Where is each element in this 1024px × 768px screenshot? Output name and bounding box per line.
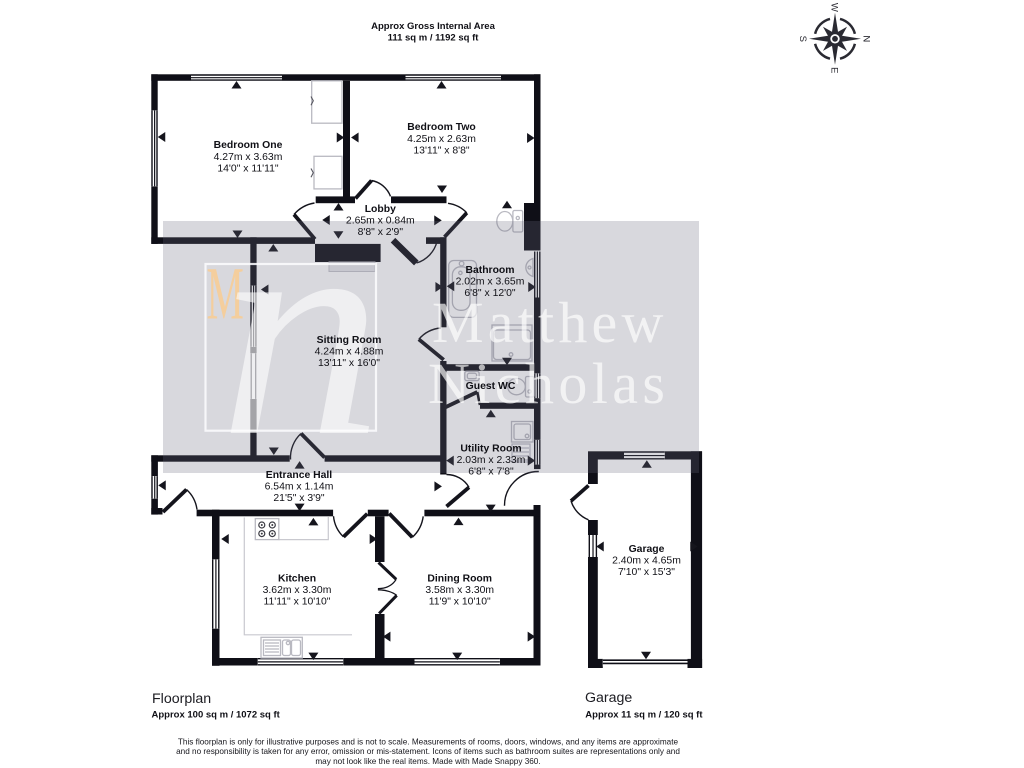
svg-text:Approx 11 sq m / 120 sq ft: Approx 11 sq m / 120 sq ft [585,710,703,721]
svg-text:8'8" x 2'9": 8'8" x 2'9" [358,227,404,238]
svg-text:Approx 100 sq m / 1072 sq ft: Approx 100 sq m / 1072 sq ft [152,709,281,720]
svg-text:Sitting Room: Sitting Room [317,335,382,346]
svg-text:2.65m x 0.84m: 2.65m x 0.84m [346,216,415,227]
svg-text:Floorplan: Floorplan [152,691,211,707]
svg-text:21'5" x 3'9": 21'5" x 3'9" [273,493,325,504]
svg-text:13'11" x 16'0": 13'11" x 16'0" [318,358,380,369]
svg-text:111 sq m / 1192 sq ft: 111 sq m / 1192 sq ft [388,32,480,43]
svg-text:Lobby: Lobby [365,204,396,215]
svg-text:E: E [829,67,840,73]
svg-text:W: W [829,3,840,12]
svg-text:11'11" x 10'10": 11'11" x 10'10" [264,597,331,608]
svg-text:4.25m x 2.63m: 4.25m x 2.63m [407,134,476,145]
svg-text:and no responsibility is taken: and no responsibility is taken for any e… [176,747,680,756]
svg-text:2.03m x 2.33m: 2.03m x 2.33m [457,455,526,466]
svg-text:3.58m x 3.30m: 3.58m x 3.30m [425,585,494,596]
svg-text:7'10" x 15'3": 7'10" x 15'3" [618,567,675,578]
svg-text:3.62m x 3.30m: 3.62m x 3.30m [263,585,332,596]
svg-text:N: N [860,35,871,42]
svg-text:Approx Gross Internal Area: Approx Gross Internal Area [371,21,495,32]
svg-text:Bathroom: Bathroom [465,265,514,276]
svg-text:This floorplan is only for ill: This floorplan is only for illustrative … [178,738,679,747]
svg-text:Utility Room: Utility Room [460,444,521,455]
svg-text:6.54m x 1.14m: 6.54m x 1.14m [265,482,334,493]
svg-text:Guest WC: Guest WC [466,381,516,392]
svg-text:4.27m x 3.63m: 4.27m x 3.63m [214,152,283,163]
svg-text:S: S [797,36,808,42]
svg-text:Bedroom One: Bedroom One [214,140,283,151]
svg-text:may not look like the real ite: may not look like the real items. Made w… [315,757,540,766]
svg-text:4.24m x 4.88m: 4.24m x 4.88m [315,347,384,358]
svg-text:6'8" x 7'8": 6'8" x 7'8" [468,467,514,478]
svg-text:Dining Room: Dining Room [427,573,492,584]
svg-text:Kitchen: Kitchen [278,573,316,584]
svg-text:Bedroom Two: Bedroom Two [407,122,476,133]
svg-text:2.02m x 3.65m: 2.02m x 3.65m [456,277,525,288]
svg-text:Garage: Garage [585,690,632,706]
svg-text:Entrance Hall: Entrance Hall [266,470,333,481]
svg-text:2.40m x 4.65m: 2.40m x 4.65m [612,556,681,567]
svg-text:14'0" x 11'11": 14'0" x 11'11" [217,163,279,174]
svg-text:11'9" x 10'10": 11'9" x 10'10" [429,597,491,608]
svg-text:Garage: Garage [629,544,665,555]
svg-text:6'8" x 12'0": 6'8" x 12'0" [464,288,516,299]
svg-text:13'11" x 8'8": 13'11" x 8'8" [413,145,470,156]
